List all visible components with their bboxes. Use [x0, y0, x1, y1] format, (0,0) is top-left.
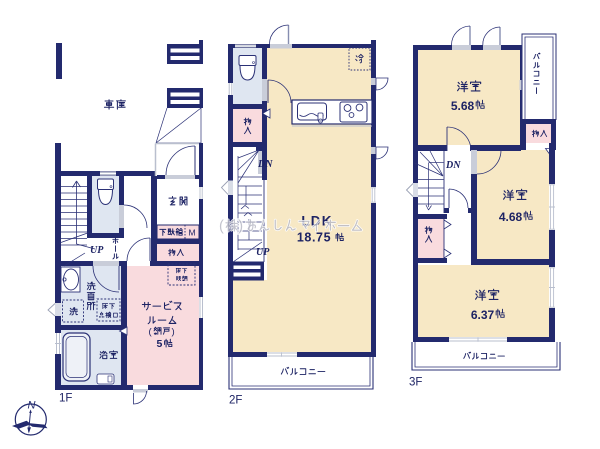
- svg-text:N: N: [28, 400, 36, 412]
- svg-text:): ): [238, 219, 243, 235]
- svg-text:UP: UP: [256, 247, 270, 258]
- svg-text:1F: 1F: [59, 393, 72, 405]
- svg-text:DN: DN: [257, 159, 273, 170]
- svg-text:(: (: [219, 219, 224, 235]
- svg-text:2F: 2F: [229, 395, 242, 407]
- svg-text:): ): [172, 327, 175, 338]
- svg-text:6.37: 6.37: [471, 308, 495, 322]
- svg-text:UP: UP: [90, 245, 104, 256]
- svg-text:18.75: 18.75: [297, 231, 331, 245]
- svg-text:DN: DN: [445, 160, 461, 171]
- svg-text:5: 5: [157, 338, 163, 350]
- svg-text:M: M: [188, 227, 195, 237]
- svg-text:3F: 3F: [409, 377, 422, 389]
- svg-text:4.68: 4.68: [499, 210, 523, 224]
- svg-text:5.68: 5.68: [451, 99, 475, 113]
